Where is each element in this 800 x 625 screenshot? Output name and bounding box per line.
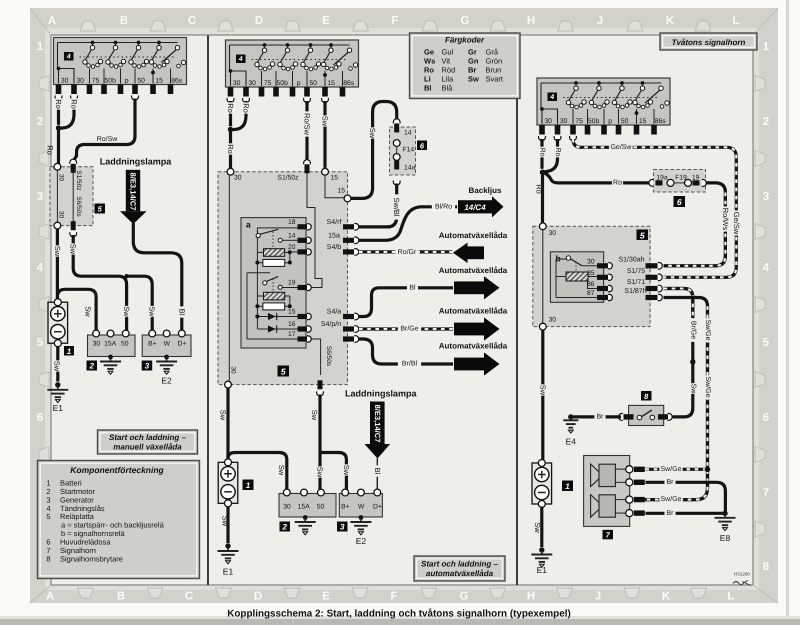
svg-text:14a: 14a bbox=[404, 165, 416, 172]
svg-text:50: 50 bbox=[121, 340, 129, 347]
svg-text:Automatväxellåda: Automatväxellåda bbox=[439, 266, 508, 275]
svg-text:19: 19 bbox=[288, 280, 296, 287]
svg-text:H31280: H31280 bbox=[734, 572, 750, 577]
svg-text:8/E3,14/C7: 8/E3,14/C7 bbox=[129, 173, 138, 211]
svg-text:87: 87 bbox=[587, 290, 595, 297]
svg-text:Sw: Sw bbox=[84, 306, 93, 317]
svg-text:15: 15 bbox=[639, 118, 647, 125]
svg-text:1: 1 bbox=[565, 482, 570, 491]
svg-text:2: 2 bbox=[763, 116, 769, 128]
svg-text:D: D bbox=[255, 15, 263, 27]
svg-text:F14: F14 bbox=[403, 147, 415, 154]
svg-text:50: 50 bbox=[621, 118, 629, 125]
svg-text:Ro: Ro bbox=[554, 148, 561, 157]
svg-text:Ro/Sw: Ro/Sw bbox=[303, 113, 312, 136]
svg-text:Signalhornsbrytare: Signalhornsbrytare bbox=[60, 554, 123, 563]
svg-text:C: C bbox=[188, 15, 196, 27]
svg-text:15: 15 bbox=[331, 175, 339, 182]
svg-text:15A: 15A bbox=[298, 503, 311, 510]
svg-text:S1/50z: S1/50z bbox=[75, 170, 82, 190]
svg-text:Li: Li bbox=[424, 75, 431, 84]
svg-text:a: a bbox=[246, 220, 251, 230]
svg-text:75: 75 bbox=[92, 78, 100, 85]
svg-text:85: 85 bbox=[587, 270, 595, 277]
svg-text:30: 30 bbox=[587, 258, 595, 265]
svg-text:Ws: Ws bbox=[424, 57, 435, 66]
svg-text:1: 1 bbox=[246, 481, 251, 490]
svg-text:S6/50s: S6/50s bbox=[75, 196, 82, 217]
svg-text:Ro/Ws: Ro/Ws bbox=[721, 208, 730, 231]
svg-text:20: 20 bbox=[288, 244, 296, 251]
svg-text:14/C4: 14/C4 bbox=[464, 203, 486, 212]
svg-text:15: 15 bbox=[338, 188, 346, 195]
svg-text:S1/50z: S1/50z bbox=[277, 175, 299, 182]
svg-text:1: 1 bbox=[37, 41, 44, 53]
svg-text:Ro: Ro bbox=[226, 103, 235, 113]
svg-text:Ro: Ro bbox=[242, 103, 251, 113]
svg-text:E1: E1 bbox=[537, 565, 548, 575]
svg-text:B+: B+ bbox=[341, 503, 350, 510]
svg-text:Bl/Ro: Bl/Ro bbox=[435, 202, 452, 210]
svg-text:30: 30 bbox=[76, 78, 84, 85]
svg-text:Ge: Ge bbox=[424, 48, 434, 57]
svg-text:S6/50s: S6/50s bbox=[325, 346, 332, 367]
svg-text:50b: 50b bbox=[277, 80, 289, 87]
svg-text:Br: Br bbox=[667, 510, 675, 517]
svg-text:5: 5 bbox=[281, 367, 286, 377]
svg-text:50: 50 bbox=[309, 80, 317, 87]
svg-text:30: 30 bbox=[233, 80, 241, 87]
svg-text:manuell växellåda: manuell växellåda bbox=[113, 443, 182, 452]
svg-text:S1/75: S1/75 bbox=[627, 267, 645, 275]
svg-text:15: 15 bbox=[327, 80, 335, 87]
svg-text:Br: Br bbox=[468, 66, 476, 75]
svg-text:A: A bbox=[48, 15, 56, 27]
svg-text:15A: 15A bbox=[104, 340, 117, 347]
svg-text:Sw: Sw bbox=[310, 410, 319, 421]
svg-text:50b: 50b bbox=[588, 118, 600, 125]
svg-text:Blå: Blå bbox=[442, 84, 454, 93]
svg-text:5: 5 bbox=[37, 337, 44, 349]
svg-text:W: W bbox=[164, 340, 171, 347]
svg-text:B+: B+ bbox=[148, 340, 157, 347]
svg-text:Sw: Sw bbox=[321, 116, 330, 127]
svg-text:Ro: Ro bbox=[534, 184, 543, 194]
svg-text:Start och laddning –: Start och laddning – bbox=[109, 433, 186, 442]
svg-text:14: 14 bbox=[404, 130, 412, 137]
svg-text:Vit: Vit bbox=[442, 57, 452, 66]
svg-text:E: E bbox=[322, 591, 330, 603]
svg-text:Sw: Sw bbox=[277, 465, 286, 476]
svg-text:Sw: Sw bbox=[148, 306, 157, 317]
svg-text:B: B bbox=[120, 15, 128, 27]
svg-text:p: p bbox=[297, 80, 301, 87]
svg-text:Ro/Sw: Ro/Sw bbox=[97, 135, 119, 143]
svg-text:Sw: Sw bbox=[221, 516, 230, 527]
svg-text:Sw: Sw bbox=[368, 128, 377, 139]
svg-text:Ro: Ro bbox=[424, 66, 434, 75]
svg-text:Br: Br bbox=[597, 413, 605, 420]
svg-text:Lila: Lila bbox=[442, 75, 455, 84]
svg-text:D: D bbox=[254, 591, 262, 603]
svg-text:S4/rf: S4/rf bbox=[327, 218, 342, 226]
svg-text:Start och laddning –: Start och laddning – bbox=[421, 560, 498, 569]
svg-text:Ge/Sw: Ge/Sw bbox=[732, 212, 741, 235]
svg-text:Grön: Grön bbox=[486, 57, 503, 66]
svg-text:Sw: Sw bbox=[122, 306, 131, 317]
svg-text:6: 6 bbox=[37, 412, 43, 424]
svg-text:S4/b: S4/b bbox=[327, 243, 342, 251]
svg-text:86s: 86s bbox=[171, 78, 183, 85]
svg-text:3: 3 bbox=[37, 191, 43, 203]
svg-text:J: J bbox=[597, 15, 603, 27]
svg-text:Ro: Ro bbox=[70, 99, 79, 109]
svg-text:Sw: Sw bbox=[53, 246, 62, 257]
svg-text:C: C bbox=[185, 591, 193, 603]
svg-text:30: 30 bbox=[283, 503, 291, 510]
svg-text:Sw: Sw bbox=[533, 522, 542, 533]
svg-text:Grå: Grå bbox=[486, 48, 499, 57]
svg-text:Br/Ge: Br/Ge bbox=[689, 321, 697, 339]
svg-text:Kopplingsschema 2: Start, ladd: Kopplingsschema 2: Start, laddning och t… bbox=[227, 608, 570, 620]
svg-text:18: 18 bbox=[288, 219, 296, 226]
svg-text:E1: E1 bbox=[223, 567, 234, 577]
svg-text:Bl: Bl bbox=[373, 468, 382, 475]
svg-text:30: 30 bbox=[234, 175, 242, 182]
svg-text:Sw: Sw bbox=[52, 361, 61, 372]
svg-text:Sw: Sw bbox=[468, 75, 479, 84]
svg-text:4: 4 bbox=[37, 262, 44, 274]
svg-text:2: 2 bbox=[282, 523, 288, 532]
svg-text:G: G bbox=[461, 15, 470, 27]
svg-text:Automatväxellåda: Automatväxellåda bbox=[439, 231, 508, 240]
svg-text:B: B bbox=[117, 591, 125, 603]
svg-text:Sw: Sw bbox=[316, 467, 325, 478]
svg-text:S4/p/n: S4/p/n bbox=[321, 320, 341, 328]
svg-text:50b: 50b bbox=[105, 78, 117, 85]
svg-text:Brun: Brun bbox=[486, 66, 502, 75]
svg-text:4: 4 bbox=[763, 262, 770, 274]
svg-text:Färgkoder: Färgkoder bbox=[445, 36, 485, 45]
svg-text:8: 8 bbox=[46, 554, 50, 563]
svg-text:Ro: Ro bbox=[539, 148, 546, 157]
svg-text:30: 30 bbox=[544, 118, 552, 125]
svg-text:Komponentförteckning: Komponentförteckning bbox=[70, 465, 164, 475]
svg-text:86: 86 bbox=[587, 281, 595, 288]
svg-text:A: A bbox=[46, 591, 54, 603]
svg-text:S4/a: S4/a bbox=[327, 308, 342, 316]
svg-text:30: 30 bbox=[93, 340, 101, 347]
svg-text:86s: 86s bbox=[655, 118, 667, 125]
svg-text:Ro: Ro bbox=[45, 145, 54, 155]
svg-text:Sw/Ge: Sw/Ge bbox=[704, 319, 712, 340]
svg-text:F: F bbox=[390, 591, 397, 603]
svg-text:Br: Br bbox=[667, 479, 675, 486]
svg-text:30: 30 bbox=[560, 118, 568, 125]
svg-text:Ge/Sw: Ge/Sw bbox=[610, 143, 632, 151]
svg-text:Laddningslampa: Laddningslampa bbox=[100, 157, 173, 167]
svg-text:7: 7 bbox=[763, 487, 769, 499]
svg-text:30: 30 bbox=[549, 230, 557, 237]
svg-text:p: p bbox=[608, 118, 612, 125]
svg-text:3: 3 bbox=[763, 191, 769, 203]
svg-text:K: K bbox=[666, 15, 675, 27]
svg-text:Svart: Svart bbox=[486, 75, 504, 84]
svg-text:L: L bbox=[727, 591, 734, 603]
svg-text:30: 30 bbox=[57, 174, 64, 182]
svg-text:50: 50 bbox=[137, 78, 145, 85]
svg-text:Gul: Gul bbox=[442, 48, 454, 57]
svg-text:75: 75 bbox=[575, 118, 583, 125]
svg-text:3: 3 bbox=[145, 362, 150, 371]
svg-text:Gn: Gn bbox=[468, 57, 479, 66]
svg-text:30: 30 bbox=[61, 78, 69, 85]
svg-text:Backljus: Backljus bbox=[469, 186, 502, 195]
svg-text:H: H bbox=[527, 15, 535, 27]
svg-text:2: 2 bbox=[89, 362, 95, 371]
svg-text:15: 15 bbox=[155, 78, 163, 85]
svg-text:Sw: Sw bbox=[689, 384, 696, 395]
svg-text:19a: 19a bbox=[656, 174, 668, 181]
svg-text:p: p bbox=[125, 78, 129, 85]
svg-text:4: 4 bbox=[549, 94, 554, 101]
svg-text:14: 14 bbox=[288, 232, 296, 239]
svg-text:Sw: Sw bbox=[218, 410, 227, 421]
svg-text:D+: D+ bbox=[178, 340, 187, 347]
svg-text:6: 6 bbox=[763, 412, 769, 424]
svg-text:H: H bbox=[527, 591, 535, 603]
svg-text:Gr: Gr bbox=[468, 48, 477, 57]
svg-text:3: 3 bbox=[340, 523, 345, 532]
svg-text:19: 19 bbox=[692, 174, 700, 181]
svg-text:Br/Ge: Br/Ge bbox=[400, 325, 418, 333]
svg-text:4: 4 bbox=[66, 53, 71, 60]
svg-text:S1/30ah: S1/30ah bbox=[618, 255, 644, 263]
svg-text:30: 30 bbox=[230, 366, 237, 374]
svg-text:16: 16 bbox=[288, 321, 296, 328]
svg-text:Ro: Ro bbox=[226, 144, 235, 154]
svg-text:Sw: Sw bbox=[342, 465, 351, 476]
svg-text:automatväxellåda: automatväxellåda bbox=[426, 569, 494, 578]
svg-text:Sw: Sw bbox=[538, 385, 547, 396]
svg-text:30: 30 bbox=[248, 80, 256, 87]
svg-text:8/E3,14/C7: 8/E3,14/C7 bbox=[373, 405, 382, 443]
svg-text:Ro: Ro bbox=[54, 99, 63, 109]
svg-text:5: 5 bbox=[640, 230, 645, 240]
svg-text:Bl: Bl bbox=[424, 84, 432, 93]
svg-text:E1: E1 bbox=[53, 403, 64, 413]
svg-text:G: G bbox=[460, 591, 469, 603]
svg-text:E4: E4 bbox=[566, 437, 577, 447]
svg-text:L: L bbox=[732, 15, 739, 27]
svg-text:E: E bbox=[322, 15, 330, 27]
svg-text:Sw/Bl: Sw/Bl bbox=[392, 197, 401, 217]
svg-text:Ro: Ro bbox=[613, 179, 622, 186]
svg-text:F: F bbox=[391, 15, 398, 27]
svg-text:K: K bbox=[662, 591, 671, 603]
svg-text:S1/71: S1/71 bbox=[627, 278, 645, 286]
svg-text:E2: E2 bbox=[356, 536, 367, 546]
svg-text:Ro/Gr: Ro/Gr bbox=[398, 248, 417, 256]
svg-text:Tvåtons signalhorn: Tvåtons signalhorn bbox=[672, 38, 746, 47]
svg-text:Bl: Bl bbox=[409, 283, 416, 291]
svg-text:1: 1 bbox=[67, 347, 72, 356]
svg-text:D+: D+ bbox=[373, 503, 382, 510]
svg-text:Sw: Sw bbox=[69, 244, 78, 255]
svg-text:17: 17 bbox=[288, 331, 296, 338]
svg-text:30: 30 bbox=[549, 317, 557, 324]
svg-text:Sw/Ge: Sw/Ge bbox=[704, 376, 712, 397]
svg-text:2: 2 bbox=[37, 116, 43, 128]
svg-text:Sw/Ge: Sw/Ge bbox=[660, 465, 681, 473]
svg-text:5: 5 bbox=[763, 337, 770, 349]
svg-text:J: J bbox=[595, 591, 601, 603]
svg-text:Br/Bl: Br/Bl bbox=[402, 360, 418, 368]
svg-text:Automatväxellåda: Automatväxellåda bbox=[439, 342, 508, 351]
svg-text:75: 75 bbox=[264, 80, 272, 87]
svg-text:Sw/Ge: Sw/Ge bbox=[660, 495, 681, 503]
svg-text:86s: 86s bbox=[343, 80, 355, 87]
svg-text:S1/87h: S1/87h bbox=[624, 287, 646, 295]
svg-text:Laddningslampa: Laddningslampa bbox=[345, 389, 418, 399]
svg-text:4: 4 bbox=[238, 56, 243, 63]
svg-text:15a: 15a bbox=[328, 232, 340, 239]
svg-text:E8: E8 bbox=[720, 533, 731, 543]
svg-text:8: 8 bbox=[763, 561, 770, 573]
svg-text:Röd: Röd bbox=[442, 66, 456, 75]
svg-text:E2: E2 bbox=[161, 376, 172, 386]
svg-text:50: 50 bbox=[317, 503, 325, 510]
svg-text:5: 5 bbox=[46, 512, 50, 521]
svg-text:15: 15 bbox=[288, 309, 296, 316]
svg-text:Bl: Bl bbox=[177, 309, 186, 316]
svg-text:W: W bbox=[358, 503, 365, 510]
svg-text:Automatväxellåda: Automatväxellåda bbox=[439, 307, 508, 316]
svg-text:30: 30 bbox=[57, 211, 64, 219]
svg-text:1: 1 bbox=[763, 41, 770, 53]
svg-text:6: 6 bbox=[677, 197, 682, 207]
